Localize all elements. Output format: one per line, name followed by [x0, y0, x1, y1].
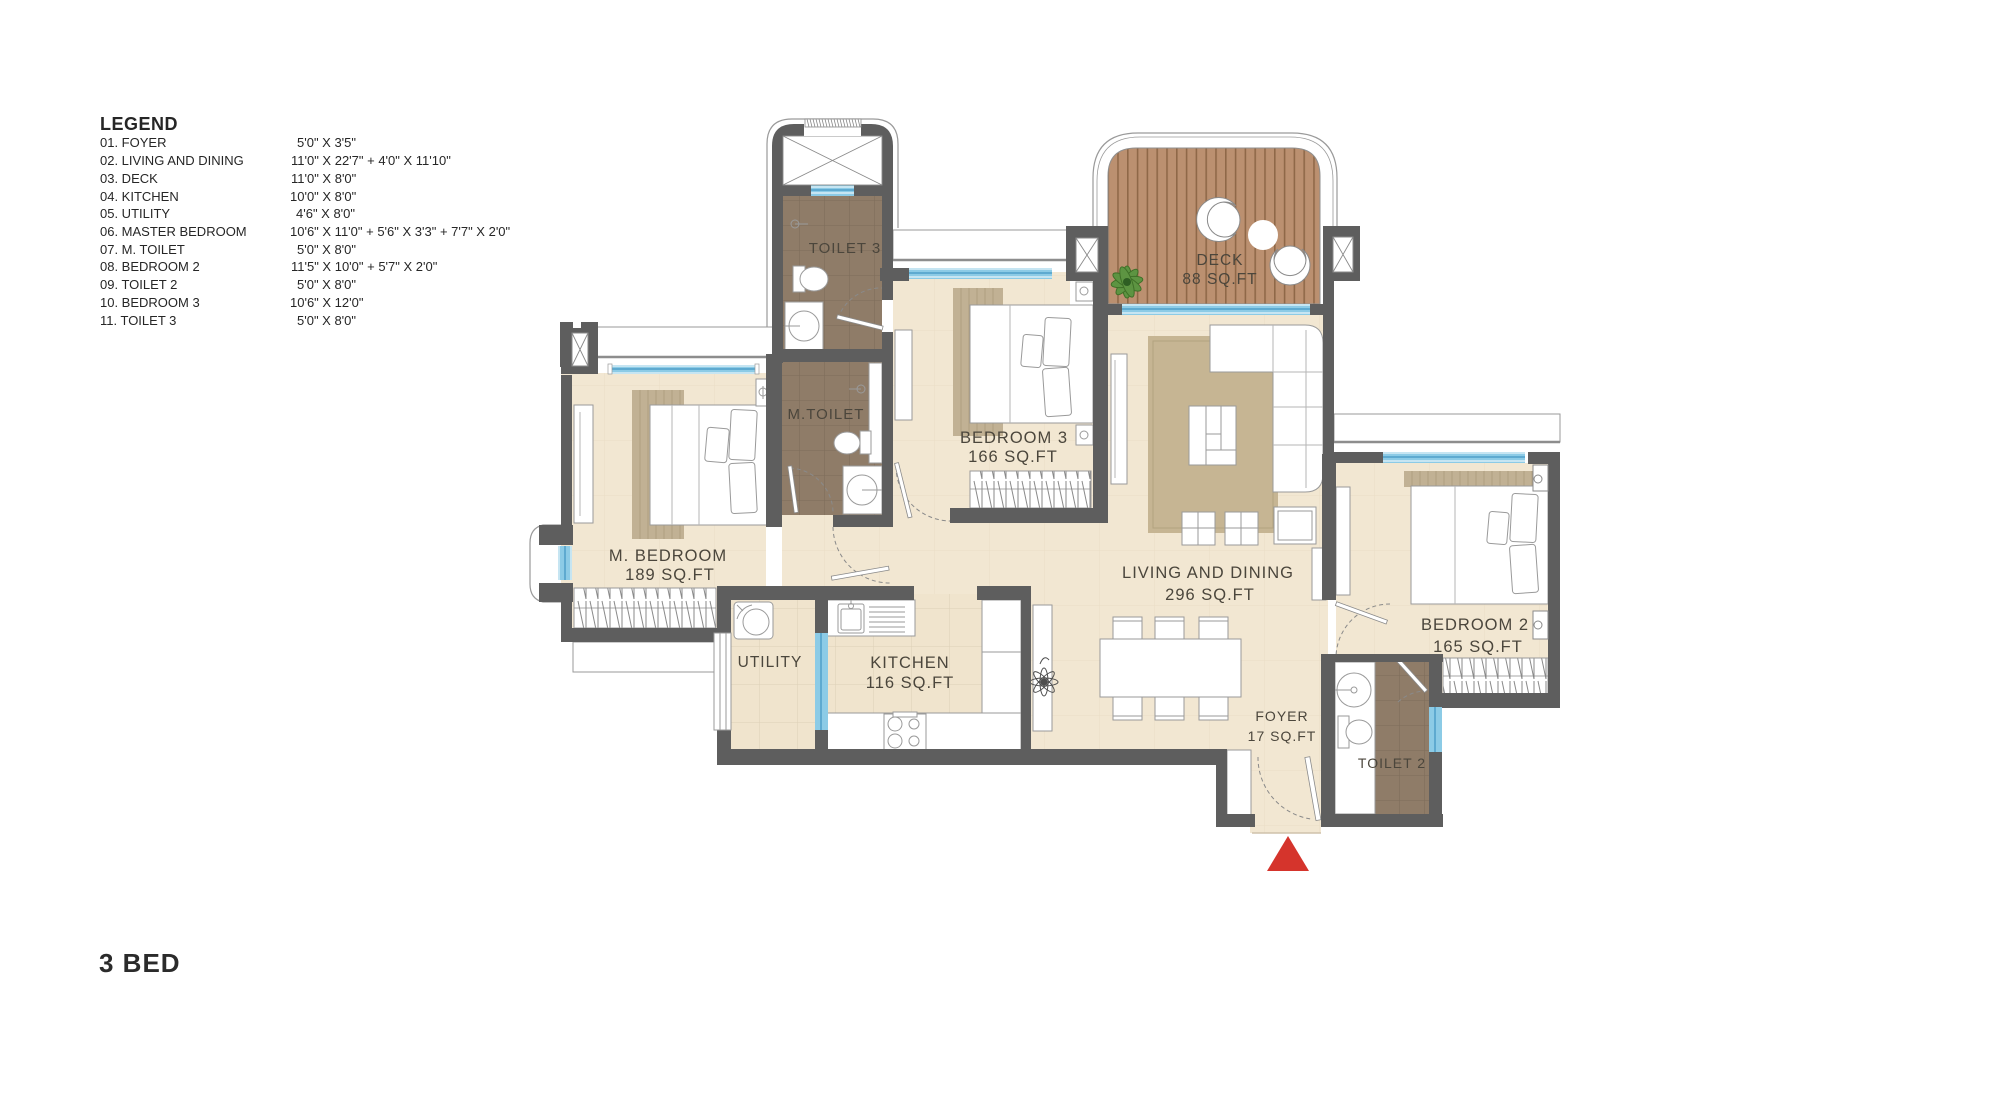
- svg-text:BEDROOM 2: BEDROOM 2: [1421, 616, 1529, 634]
- svg-text:DECK: DECK: [1196, 252, 1243, 269]
- svg-text:11'0" X 22'7" + 4'0" X 11'10: 11'0" X 22'7" + 4'0" X 11'10": [291, 153, 451, 168]
- svg-text:11'0" X 8'0": 11'0" X 8'0": [291, 171, 357, 186]
- svg-text:LEGEND: LEGEND: [100, 114, 178, 134]
- svg-text:116 SQ.FT: 116 SQ.FT: [866, 674, 954, 692]
- svg-text:09. TOILET 2: 09. TOILET 2: [100, 277, 177, 292]
- svg-text:3 BED: 3 BED: [99, 948, 181, 978]
- svg-text:06. MASTER BEDROOM: 06. MASTER BEDROOM: [100, 224, 247, 239]
- svg-text:11'5" X 10'0" + 5'7" X 2'0": 11'5" X 10'0" + 5'7" X 2'0": [291, 259, 438, 274]
- svg-text:165 SQ.FT: 165 SQ.FT: [1433, 638, 1523, 656]
- svg-text:17 SQ.FT: 17 SQ.FT: [1248, 728, 1317, 744]
- svg-text:BEDROOM 3: BEDROOM 3: [960, 429, 1068, 447]
- svg-text:04. KITCHEN: 04. KITCHEN: [100, 189, 179, 204]
- svg-text:01. FOYER: 01. FOYER: [100, 135, 166, 150]
- svg-text:08. BEDROOM 2: 08. BEDROOM 2: [100, 259, 200, 274]
- svg-text:10'0" X 8'0": 10'0" X 8'0": [290, 189, 357, 204]
- svg-text:5'0" X 8'0": 5'0" X 8'0": [297, 277, 356, 292]
- svg-text:10. BEDROOM 3: 10. BEDROOM 3: [100, 295, 200, 310]
- svg-text:LIVING AND DINING: LIVING AND DINING: [1122, 564, 1294, 582]
- svg-text:FOYER: FOYER: [1255, 708, 1308, 724]
- svg-text:M.TOILET: M.TOILET: [788, 406, 865, 423]
- svg-text:296 SQ.FT: 296 SQ.FT: [1165, 586, 1255, 604]
- svg-text:4'6" X 8'0": 4'6" X 8'0": [296, 206, 355, 221]
- svg-text:07. M. TOILET: 07. M. TOILET: [100, 242, 185, 257]
- svg-text:03. DECK: 03. DECK: [100, 171, 158, 186]
- svg-text:TOILET 3: TOILET 3: [809, 240, 881, 257]
- svg-text:10'6" X 12'0": 10'6" X 12'0": [290, 295, 364, 310]
- svg-text:166 SQ.FT: 166 SQ.FT: [968, 448, 1058, 466]
- svg-text:02. LIVING AND DINING: 02. LIVING AND DINING: [100, 153, 244, 168]
- svg-text:M. BEDROOM: M. BEDROOM: [609, 547, 727, 565]
- svg-text:UTILITY: UTILITY: [738, 654, 803, 671]
- svg-text:10'6" X 11'0" + 5'6" X 3'3": 10'6" X 11'0" + 5'6" X 3'3" + 7'7" X 2'0…: [290, 224, 511, 239]
- svg-text:88 SQ.FT: 88 SQ.FT: [1182, 271, 1257, 288]
- svg-text:189 SQ.FT: 189 SQ.FT: [625, 566, 715, 584]
- svg-text:TOILET 2: TOILET 2: [1358, 755, 1426, 771]
- svg-text:05. UTILITY: 05. UTILITY: [100, 206, 170, 221]
- svg-text:5'0" X 3'5": 5'0" X 3'5": [297, 135, 356, 150]
- svg-text:11. TOILET 3: 11. TOILET 3: [100, 313, 176, 328]
- svg-text:5'0" X 8'0": 5'0" X 8'0": [297, 242, 356, 257]
- svg-text:5'0" X 8'0": 5'0" X 8'0": [297, 313, 356, 328]
- svg-text:KITCHEN: KITCHEN: [870, 654, 949, 672]
